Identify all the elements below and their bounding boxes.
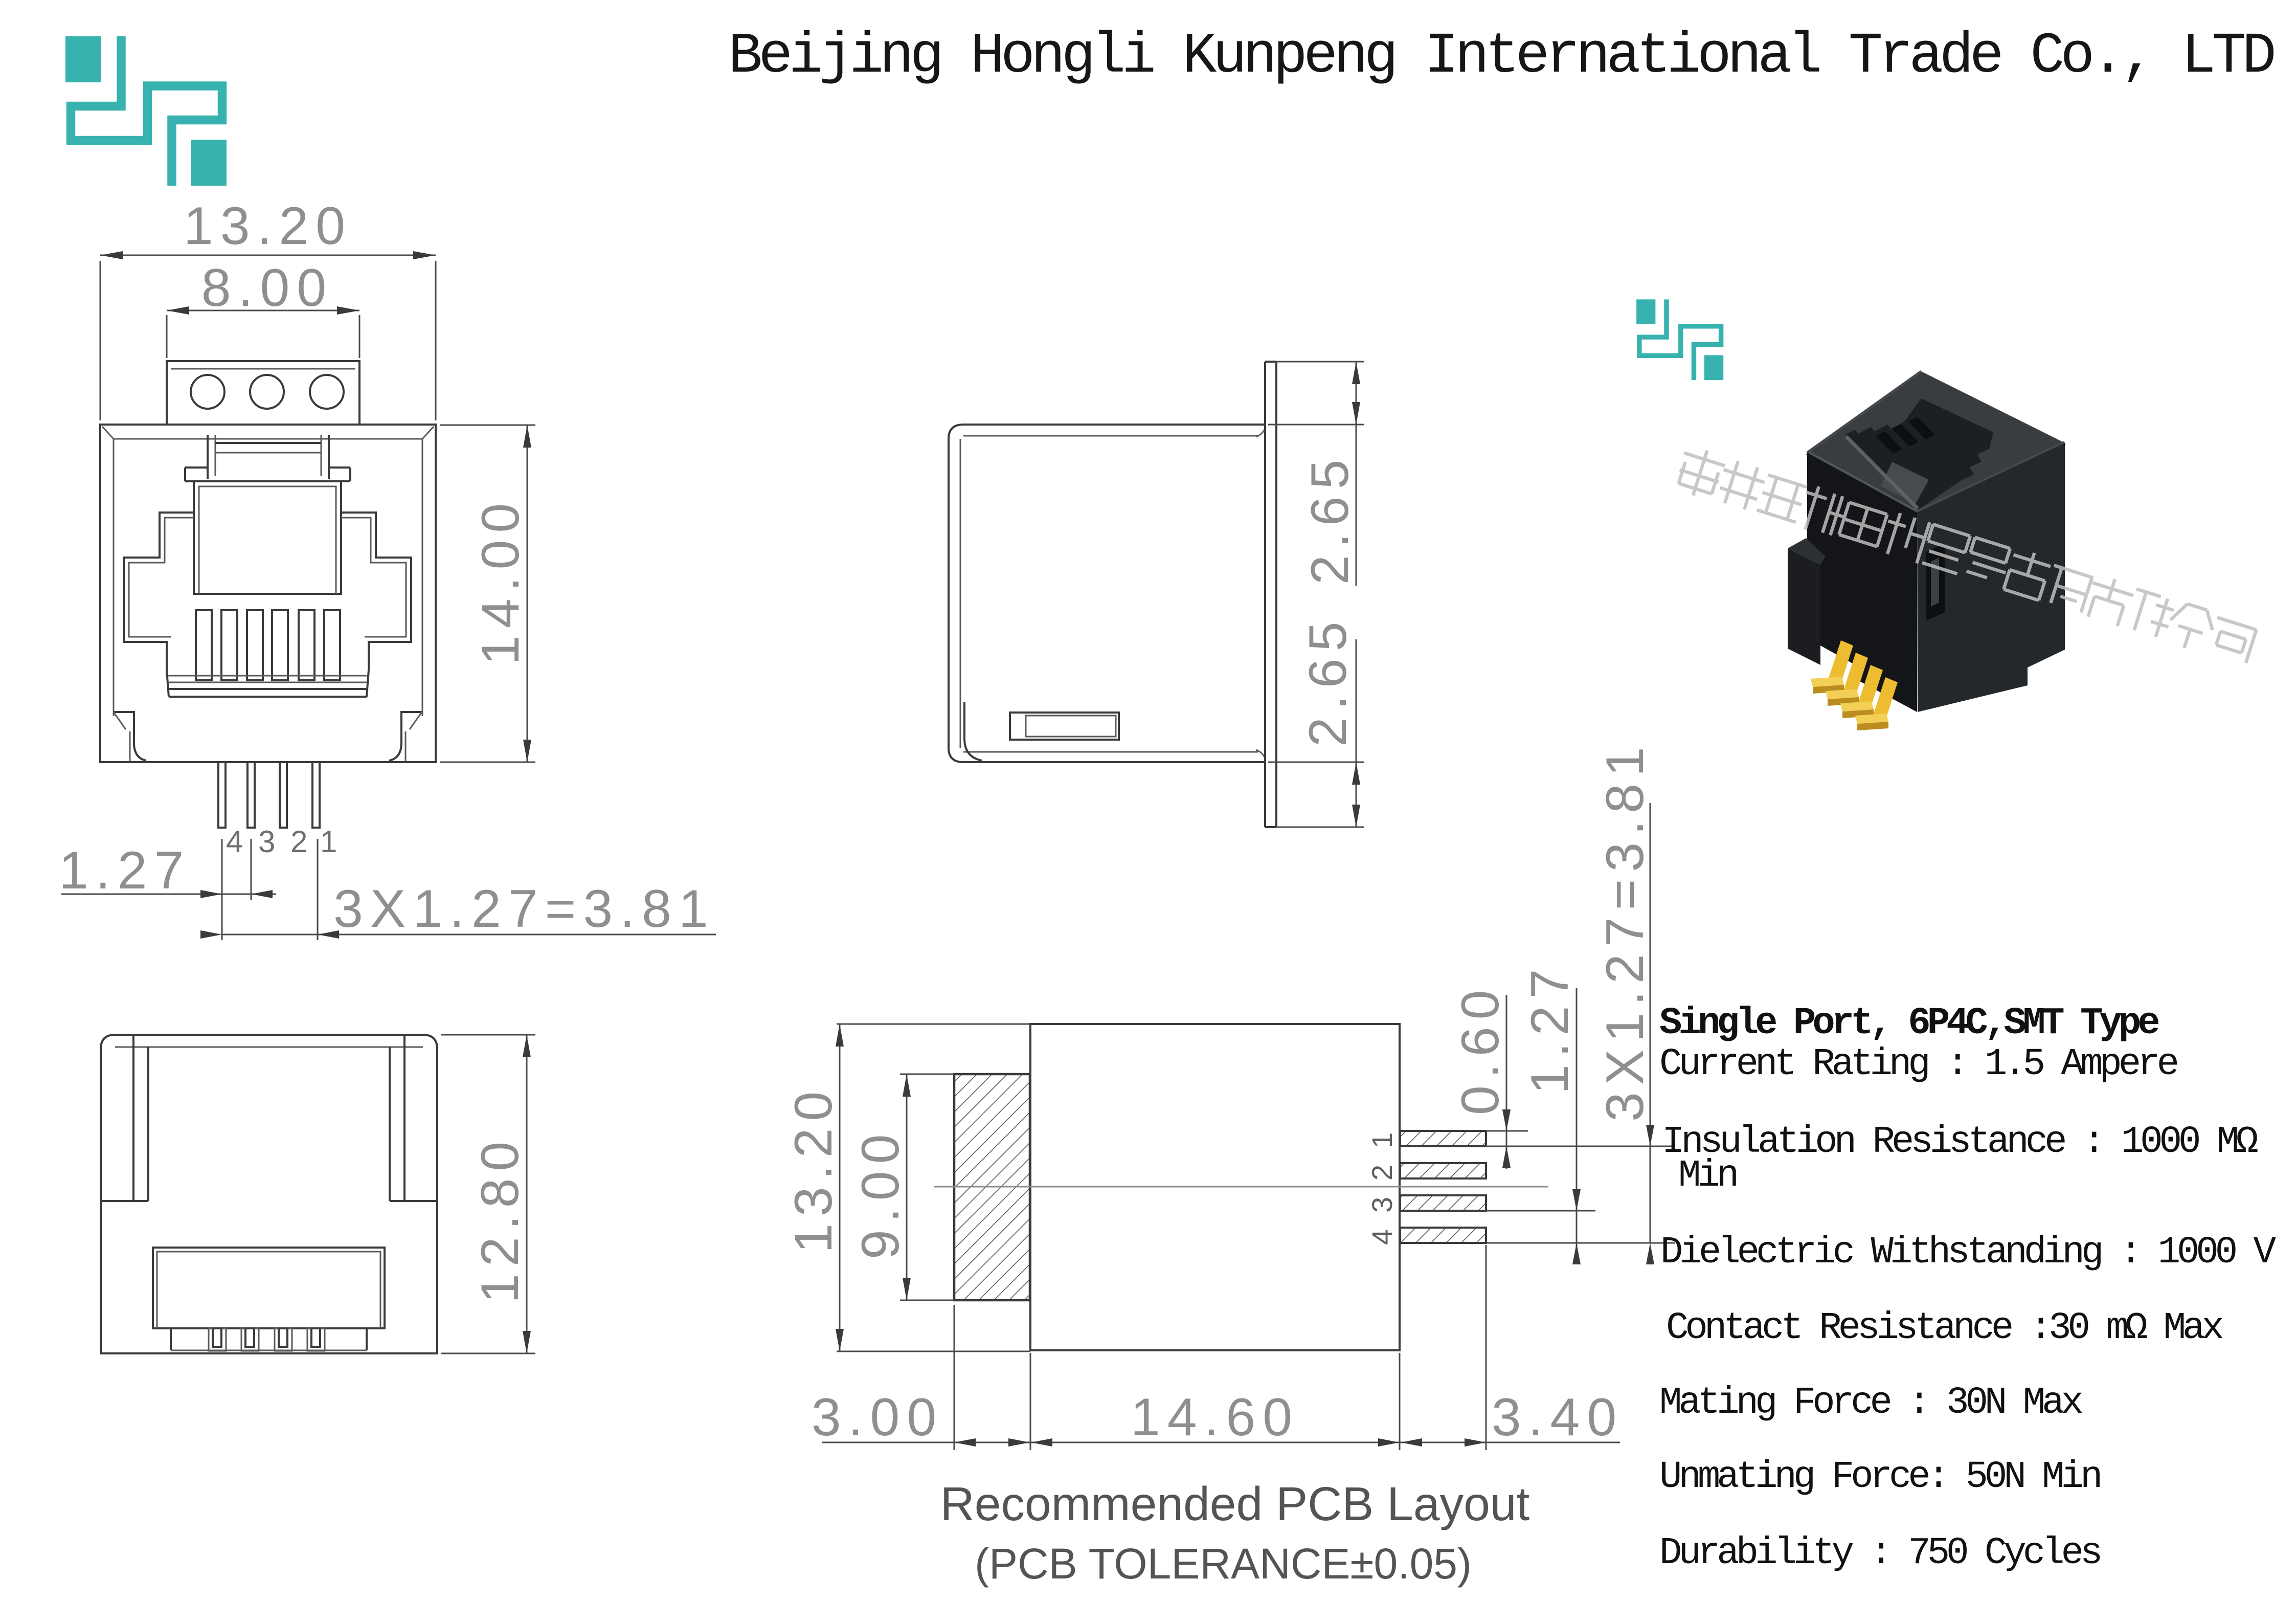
svg-text:13.20: 13.20 [184,196,352,256]
svg-text:1.27: 1.27 [59,841,191,900]
svg-text:3.40: 3.40 [1492,1388,1624,1447]
svg-text:14.60: 14.60 [1131,1388,1299,1447]
svg-text:Contact Resistance :30 mΩ Max: Contact Resistance :30 mΩ Max [1666,1307,2222,1350]
svg-text:2.65: 2.65 [1300,453,1360,585]
svg-text:2.65: 2.65 [1298,615,1358,747]
svg-text:Durability : 750 Cycles: Durability : 750 Cycles [1659,1532,2100,1575]
svg-text:4: 4 [1366,1229,1398,1245]
svg-text:Unmating Force: 50N Min: Unmating Force: 50N Min [1659,1456,2100,1499]
svg-text:Recommended PCB Layout: Recommended PCB Layout [940,1477,1530,1530]
svg-text:0.60: 0.60 [1451,983,1510,1115]
svg-text:Beijing Hongli Kunpeng Interna: Beijing Hongli Kunpeng International Tra… [728,24,2274,89]
svg-text:3X1.27=3.81: 3X1.27=3.81 [1595,740,1655,1122]
svg-text:13.20: 13.20 [784,1084,843,1253]
svg-text:Min: Min [1678,1154,1736,1197]
svg-text:Current Rating : 1.5 Ampere: Current Rating : 1.5 Ampere [1659,1043,2177,1086]
svg-text:2: 2 [290,825,307,859]
svg-text:Insulation Resistance : 1000 M: Insulation Resistance : 1000 MΩ [1662,1121,2258,1164]
svg-text:3: 3 [1366,1197,1398,1213]
svg-text:Dielectric Withstanding : 1000: Dielectric Withstanding : 1000 V [1660,1231,2277,1274]
svg-text:3.00: 3.00 [812,1388,943,1447]
svg-text:1.27: 1.27 [1520,962,1580,1094]
svg-text:8.00: 8.00 [201,258,333,318]
svg-text:14.00: 14.00 [471,496,530,665]
svg-text:3: 3 [258,825,275,859]
svg-text:4: 4 [226,825,243,859]
svg-text:12.80: 12.80 [470,1134,530,1303]
svg-text:Mating Force : 30N Max: Mating Force : 30N Max [1659,1382,2082,1425]
svg-text:3X1.27=3.81: 3X1.27=3.81 [333,879,715,939]
svg-text:1: 1 [1366,1132,1398,1148]
svg-text:Single Port, 6P4C,SMT Type: Single Port, 6P4C,SMT Type [1659,1002,2158,1045]
svg-text:(PCB TOLERANCE±0.05): (PCB TOLERANCE±0.05) [975,1540,1472,1588]
svg-text:2: 2 [1366,1165,1398,1181]
svg-text:9.00: 9.00 [851,1127,910,1259]
svg-text:1: 1 [320,825,337,859]
